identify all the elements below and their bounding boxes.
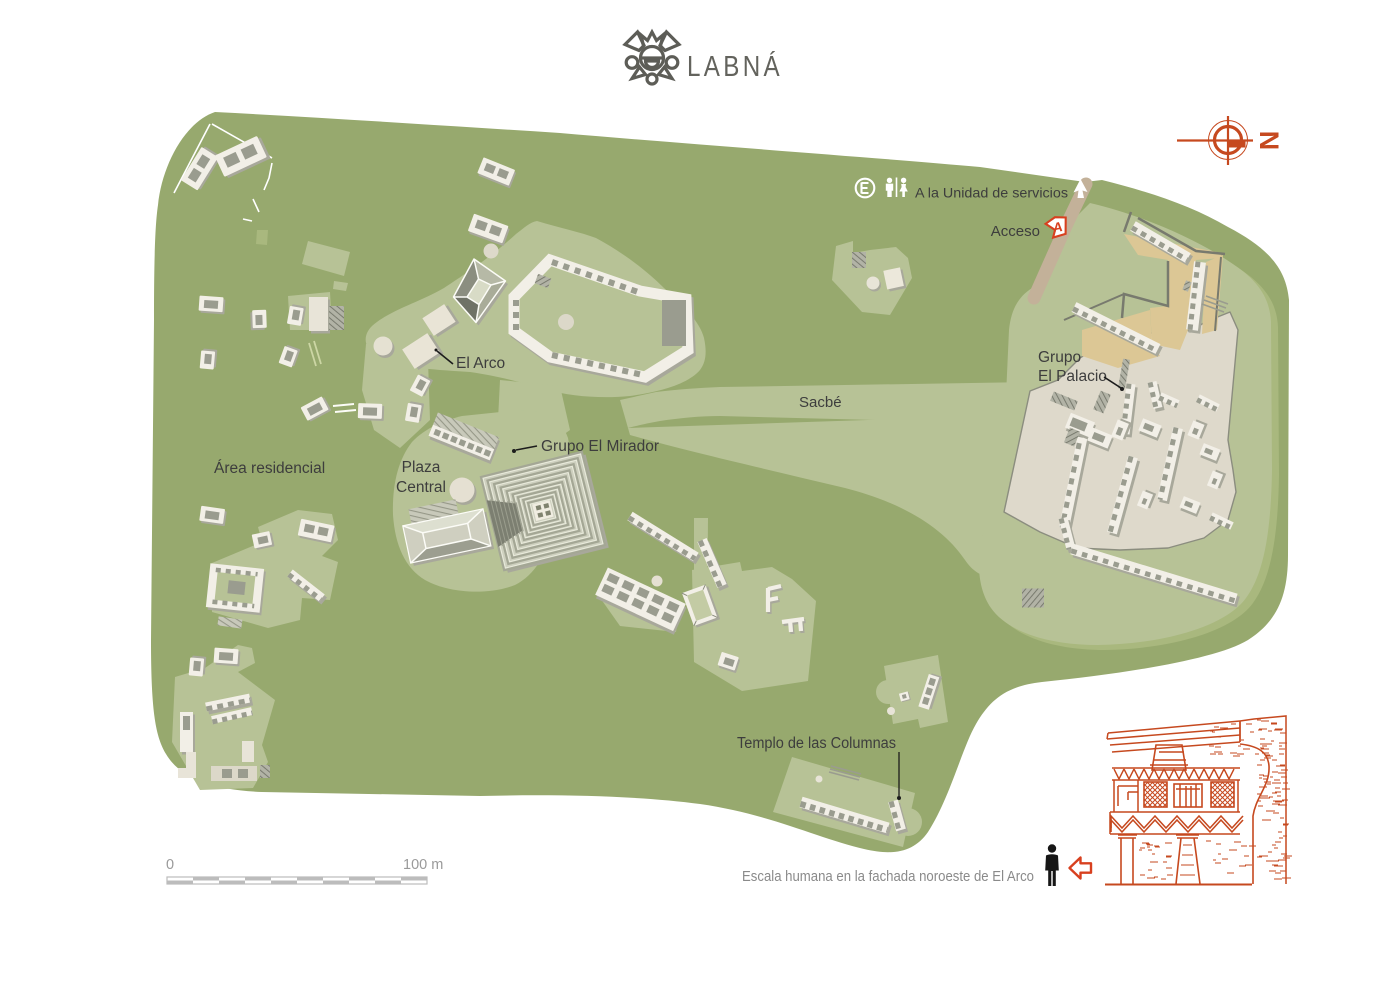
svg-text:El Arco: El Arco — [456, 355, 505, 372]
svg-text:Central: Central — [396, 479, 446, 496]
svg-text:A la Unidad de servicios: A la Unidad de servicios — [915, 185, 1068, 201]
svg-text:Grupo El Mirador: Grupo El Mirador — [541, 438, 659, 455]
svg-text:100 m: 100 m — [403, 857, 443, 873]
svg-text:Templo de las Columnas: Templo de las Columnas — [737, 735, 896, 752]
svg-text:El Palacio: El Palacio — [1038, 368, 1107, 385]
svg-text:0: 0 — [166, 857, 174, 873]
svg-text:N: N — [1254, 131, 1284, 151]
svg-text:Área residencial: Área residencial — [214, 460, 325, 477]
svg-text:Sacbé: Sacbé — [799, 394, 842, 411]
svg-text:Acceso: Acceso — [991, 223, 1040, 240]
svg-text:LABNÁ: LABNÁ — [687, 50, 783, 83]
svg-text:Escala humana en la fachada no: Escala humana en la fachada noroeste de … — [742, 869, 1034, 885]
svg-text:Plaza: Plaza — [402, 459, 441, 476]
svg-text:Grupo: Grupo — [1038, 349, 1081, 366]
